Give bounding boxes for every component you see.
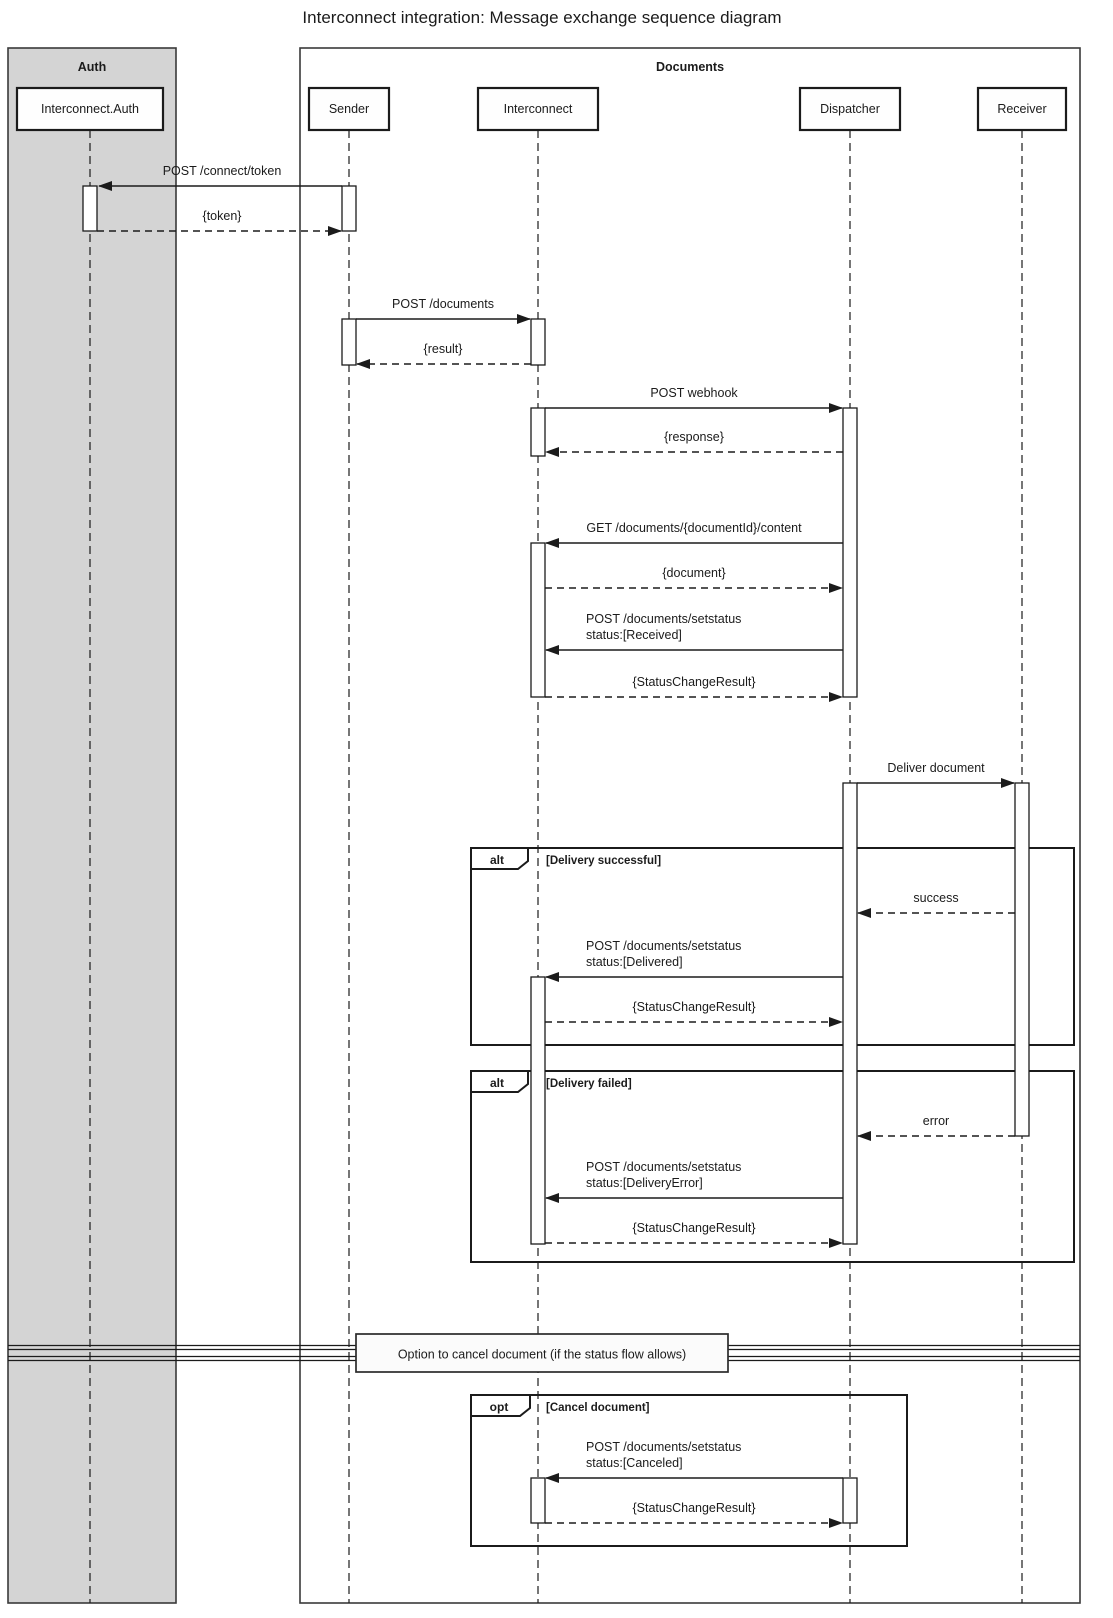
- frame-operator-alt-2: alt: [490, 1076, 504, 1090]
- message-label-document-reply: {document}: [662, 566, 725, 580]
- activation-bar-interconnect: [531, 1478, 545, 1523]
- activation-bar-dispatcher: [843, 1478, 857, 1523]
- frame-guard-cancel-document: [Cancel document]: [546, 1402, 650, 1414]
- activation-bar-sender: [342, 186, 356, 231]
- message-label-set-status-canceled-line1: POST /documents/setstatus: [586, 1440, 741, 1454]
- message-label-post-webhook: POST webhook: [650, 386, 738, 400]
- message-label-status-change-result-2: {StatusChangeResult}: [632, 1000, 755, 1014]
- activation-bar-interconnect: [531, 543, 545, 697]
- message-label-get-document-content: GET /documents/{documentId}/content: [586, 521, 802, 535]
- message-label-error-reply: error: [923, 1114, 949, 1128]
- message-label-deliver-document: Deliver document: [887, 761, 985, 775]
- message-label-set-status-delivered-line2: status:[Delivered]: [586, 955, 683, 969]
- divider-label: Option to cancel document (if the status…: [398, 1348, 686, 1362]
- message-label-status-change-result-4: {StatusChangeResult}: [632, 1501, 755, 1515]
- participant-label-dispatcher: Dispatcher: [820, 102, 880, 116]
- frame-operator-alt-1: alt: [490, 853, 504, 867]
- participant-label-interconnect-auth: Interconnect.Auth: [41, 102, 139, 116]
- participant-label-sender: Sender: [329, 102, 369, 116]
- message-label-status-change-result-1: {StatusChangeResult}: [632, 675, 755, 689]
- message-label-success-reply: success: [913, 891, 958, 905]
- sequence-diagram: Interconnect integration: Message exchan…: [0, 0, 1113, 1613]
- frame-guard-delivery-failed: [Delivery failed]: [546, 1078, 632, 1090]
- activation-bar-dispatcher: [843, 783, 857, 1244]
- participant-label-receiver: Receiver: [997, 102, 1046, 116]
- auth-container-label: Auth: [78, 60, 106, 74]
- message-label-status-change-result-3: {StatusChangeResult}: [632, 1221, 755, 1235]
- activation-bar-interconnect: [531, 319, 545, 365]
- message-label-set-status-received-line2: status:[Received]: [586, 628, 682, 642]
- activation-bar-interconnect-auth: [83, 186, 97, 231]
- message-label-response-reply: {response}: [664, 430, 724, 444]
- activation-bar-interconnect: [531, 408, 545, 456]
- message-label-set-status-canceled-line2: status:[Canceled]: [586, 1456, 683, 1470]
- participant-label-interconnect: Interconnect: [504, 102, 573, 116]
- frame-operator-opt: opt: [490, 1400, 509, 1414]
- diagram-title: Interconnect integration: Message exchan…: [302, 8, 781, 27]
- auth-container: [8, 48, 176, 1603]
- activation-bar-sender: [342, 319, 356, 365]
- documents-container-label: Documents: [656, 60, 724, 74]
- message-label-result-reply: {result}: [424, 342, 463, 356]
- message-label-set-status-received-line1: POST /documents/setstatus: [586, 612, 741, 626]
- frame-guard-delivery-successful: [Delivery successful]: [546, 855, 661, 867]
- activation-bar-receiver: [1015, 783, 1029, 1136]
- message-label-post-documents: POST /documents: [392, 297, 494, 311]
- sequence-diagram-page: Interconnect integration: Message exchan…: [0, 0, 1113, 1613]
- message-label-set-status-delivered-line1: POST /documents/setstatus: [586, 939, 741, 953]
- activation-bar-dispatcher: [843, 408, 857, 697]
- activation-bar-interconnect: [531, 977, 545, 1244]
- message-label-post-connect-token: POST /connect/token: [163, 164, 282, 178]
- message-label-token-reply: {token}: [203, 209, 242, 223]
- message-label-set-status-delivery-error-line1: POST /documents/setstatus: [586, 1160, 741, 1174]
- message-label-set-status-delivery-error-line2: status:[DeliveryError]: [586, 1176, 703, 1190]
